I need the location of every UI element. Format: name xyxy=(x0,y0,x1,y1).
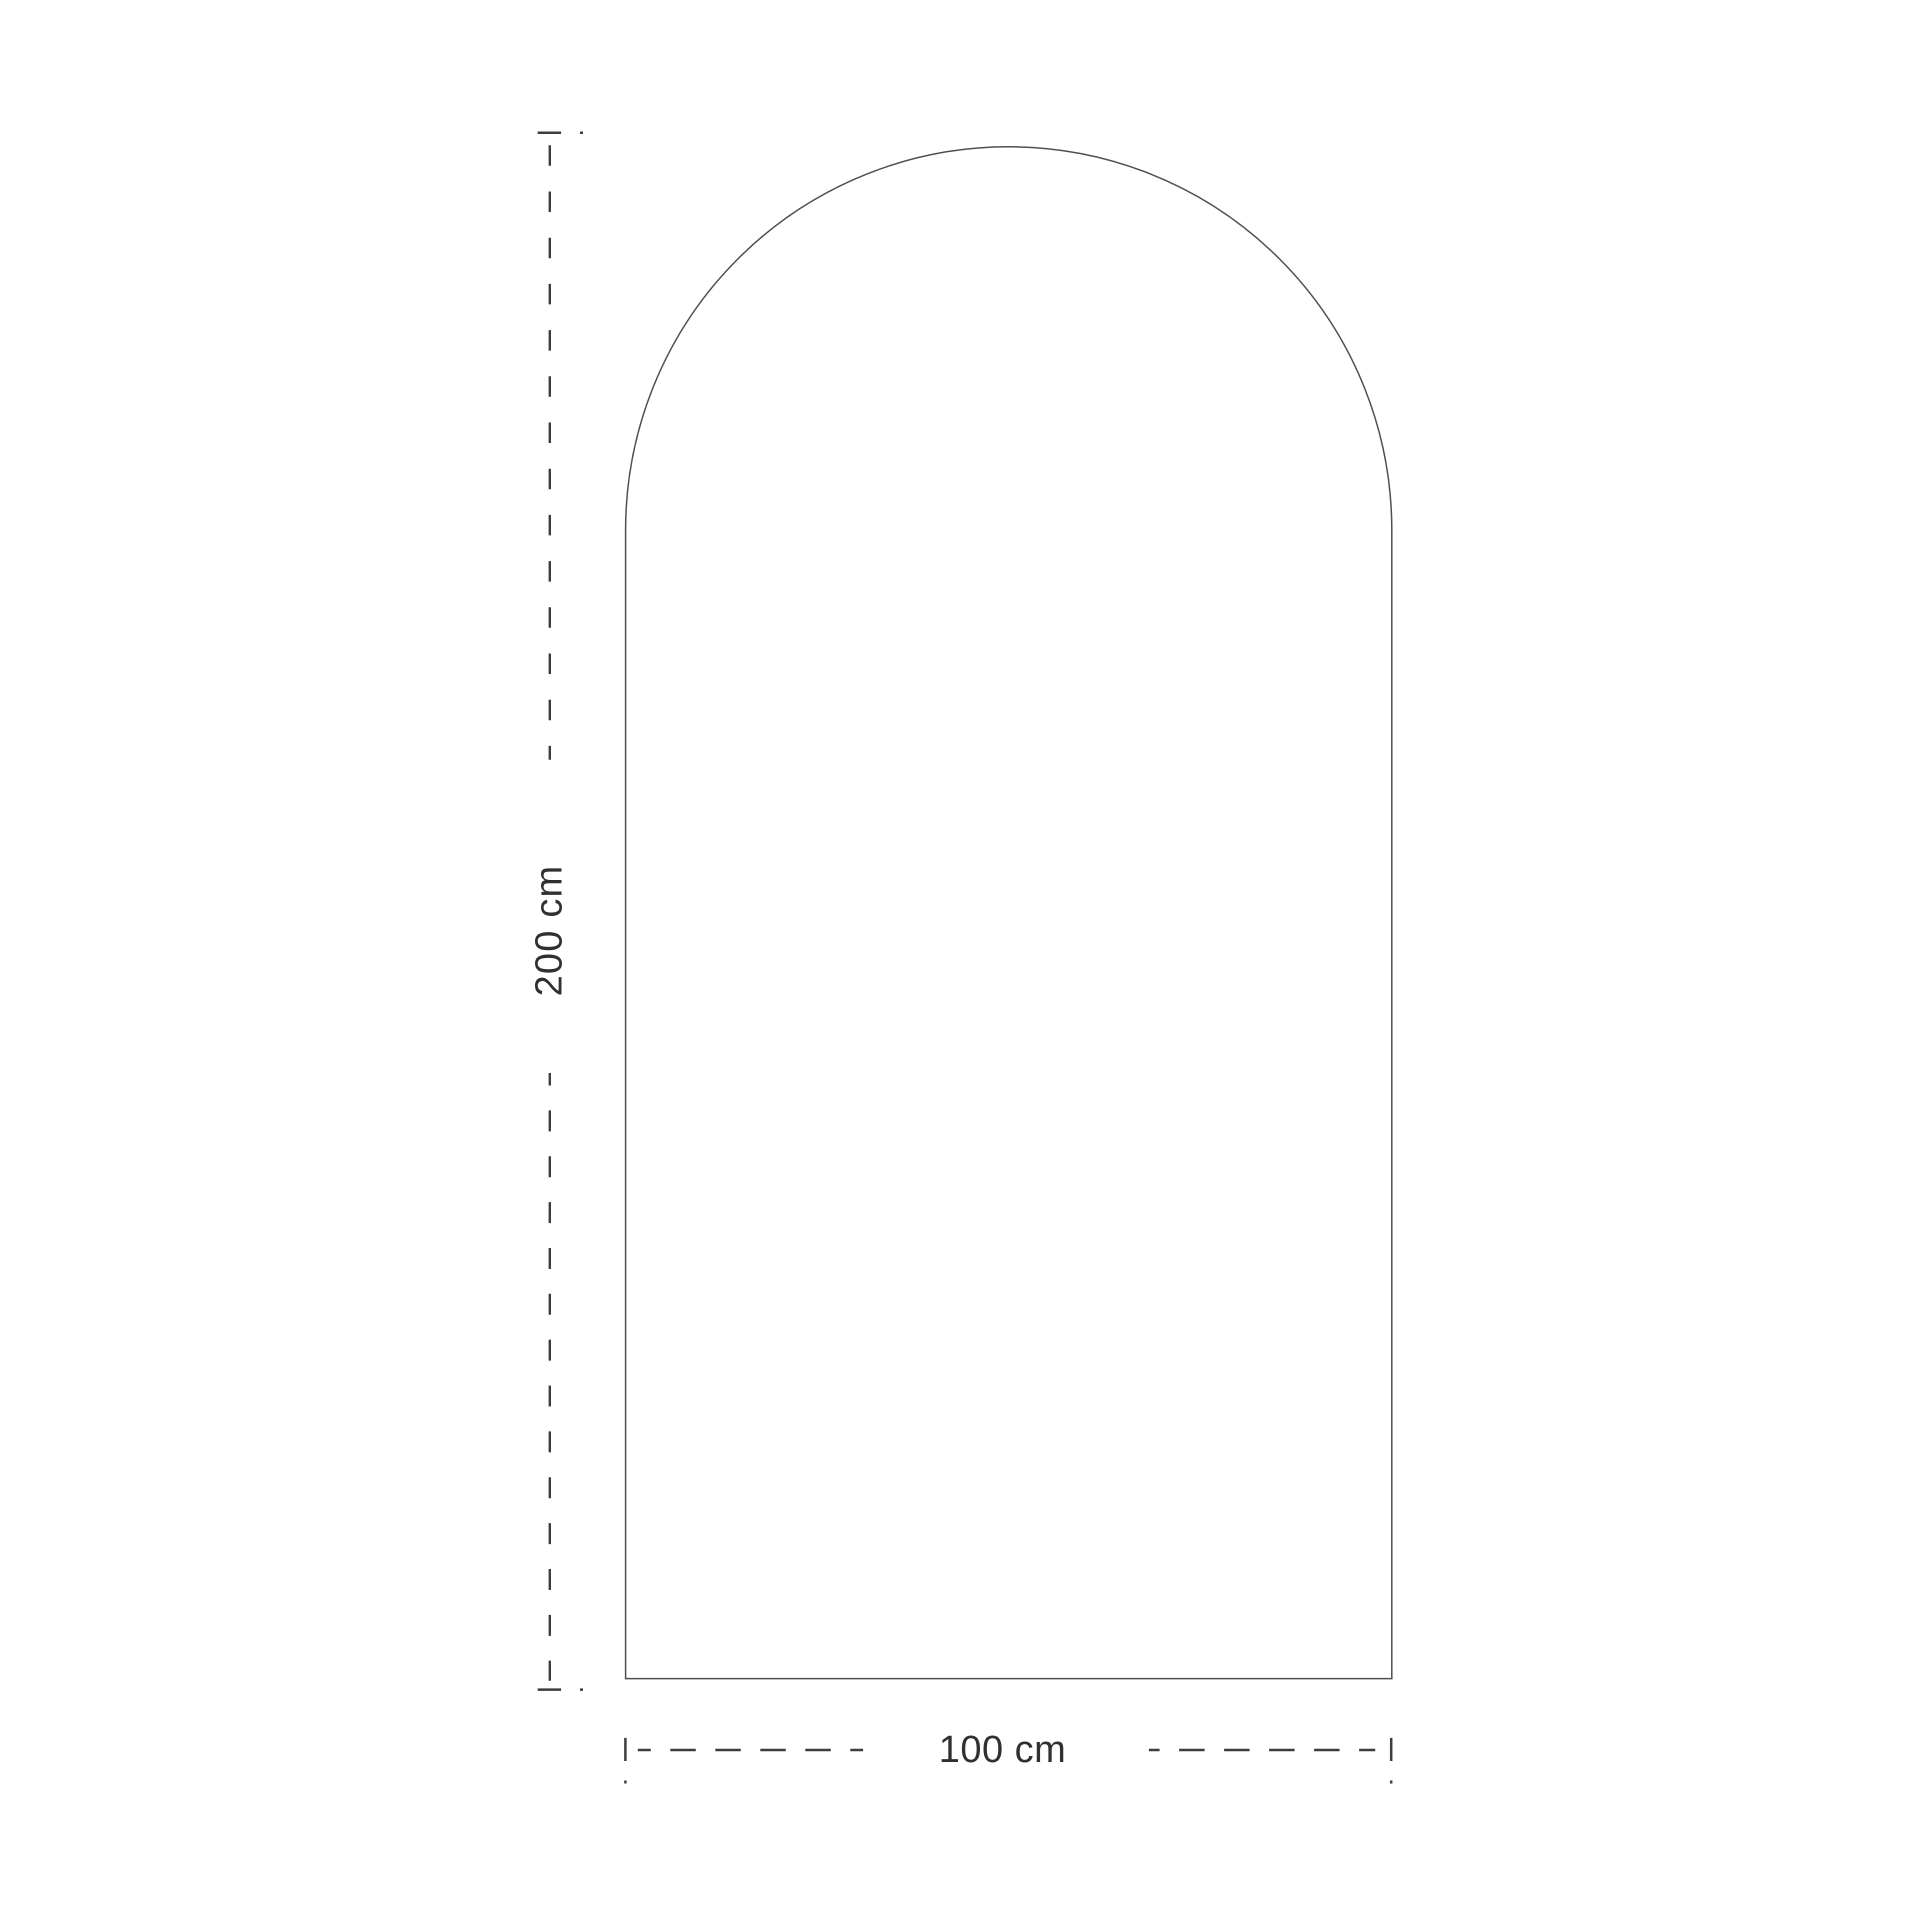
svg-text:100 cm: 100 cm xyxy=(939,1729,1067,1771)
svg-text:200 cm: 200 cm xyxy=(529,865,571,997)
